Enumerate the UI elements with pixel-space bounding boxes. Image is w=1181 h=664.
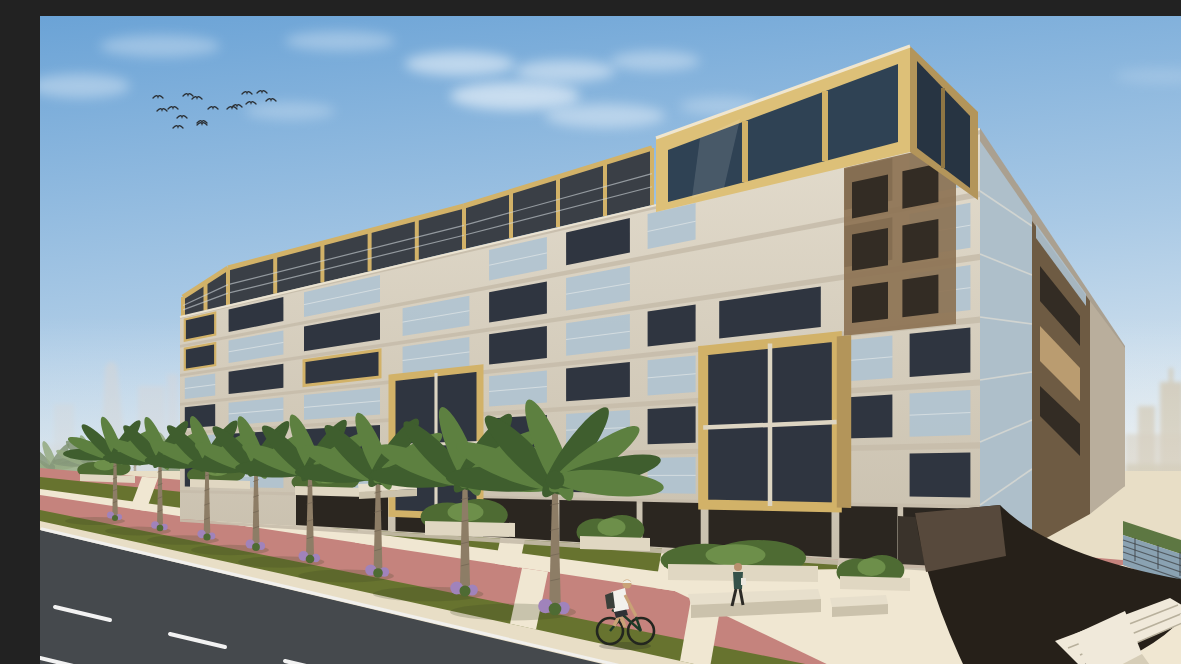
- cloud: [100, 35, 220, 57]
- base-shrub: [549, 603, 562, 616]
- planter: [577, 515, 651, 551]
- base-shrub: [203, 533, 210, 540]
- bronze-window: [902, 163, 938, 208]
- window: [910, 328, 971, 377]
- base-shrub: [252, 543, 260, 551]
- cloud: [545, 104, 665, 128]
- base-shrub: [373, 568, 383, 578]
- shrub-highlight: [706, 544, 766, 566]
- window: [648, 305, 696, 347]
- gold-box-return: [837, 335, 851, 508]
- planter-box: [840, 576, 910, 591]
- window: [910, 453, 971, 498]
- base-shrub: [459, 585, 470, 596]
- bronze-window: [902, 275, 938, 318]
- window: [844, 395, 892, 439]
- bronze-window: [852, 228, 888, 271]
- storefront-opening: [643, 502, 701, 550]
- window: [566, 362, 630, 401]
- architectural-rendering: [40, 16, 1181, 664]
- cloud: [450, 82, 580, 110]
- cloud: [245, 102, 335, 120]
- planter-box: [425, 521, 515, 537]
- shrub-highlight: [858, 558, 886, 576]
- bronze-window: [852, 282, 888, 323]
- storefront-opening: [839, 506, 897, 561]
- render-canvas: [40, 16, 1181, 664]
- base-shrub: [157, 525, 164, 532]
- planter-box: [580, 536, 650, 551]
- cloud: [285, 31, 395, 51]
- shrub-highlight: [598, 518, 626, 536]
- corner-glass-balconies: [980, 141, 1032, 568]
- cloud: [610, 51, 700, 71]
- gold-frame-window: [185, 343, 215, 370]
- palm-crown: [546, 471, 565, 490]
- window: [648, 406, 696, 444]
- cloud: [405, 52, 515, 76]
- base-shrub: [306, 555, 315, 564]
- cloud: [515, 60, 615, 82]
- bronze-window: [902, 219, 938, 263]
- base-shrub: [112, 515, 118, 521]
- planter: [837, 555, 911, 591]
